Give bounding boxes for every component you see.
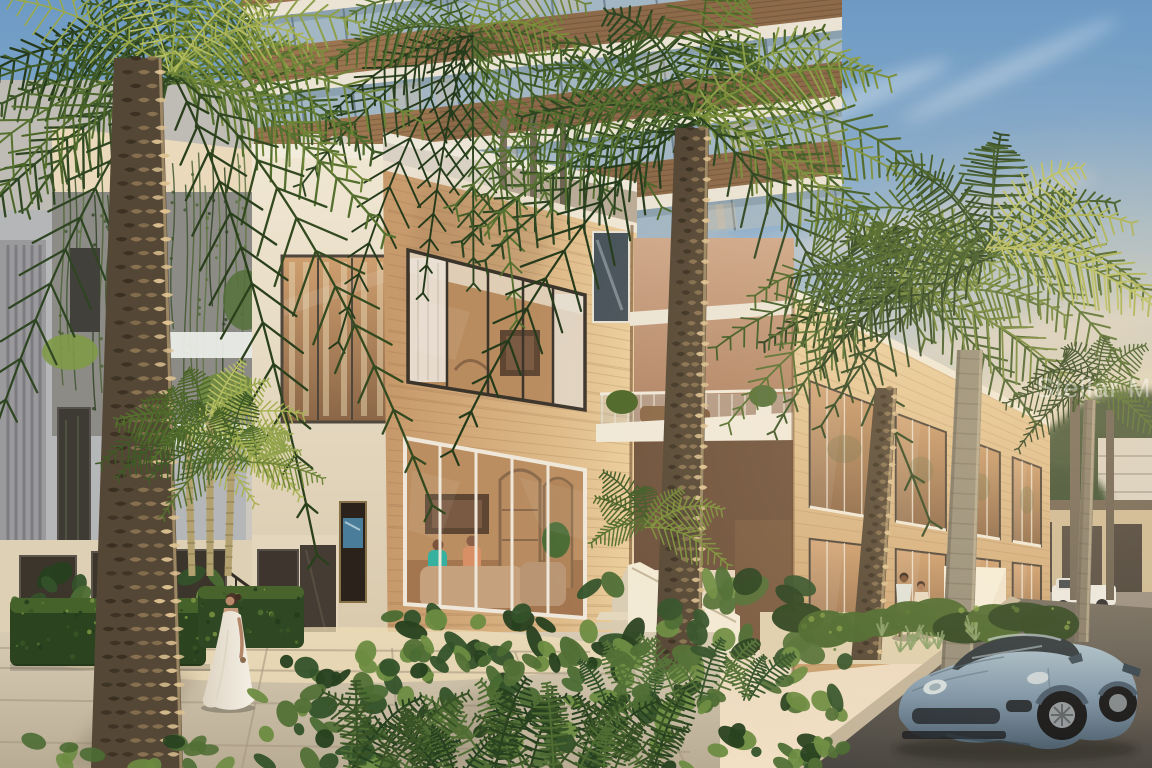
face — [226, 597, 235, 606]
mls-watermark: Stellar MLS — [1036, 373, 1152, 403]
upper-curtained-window — [282, 256, 388, 422]
left-window — [70, 248, 100, 332]
sofa — [420, 566, 524, 608]
clutch-bag — [240, 657, 246, 663]
rendering-scene: Stellar MLS — [0, 0, 1152, 768]
listing-photo: Stellar MLS — [0, 0, 1152, 768]
media-sliver-window — [340, 502, 366, 602]
seated-person-head — [433, 540, 444, 551]
